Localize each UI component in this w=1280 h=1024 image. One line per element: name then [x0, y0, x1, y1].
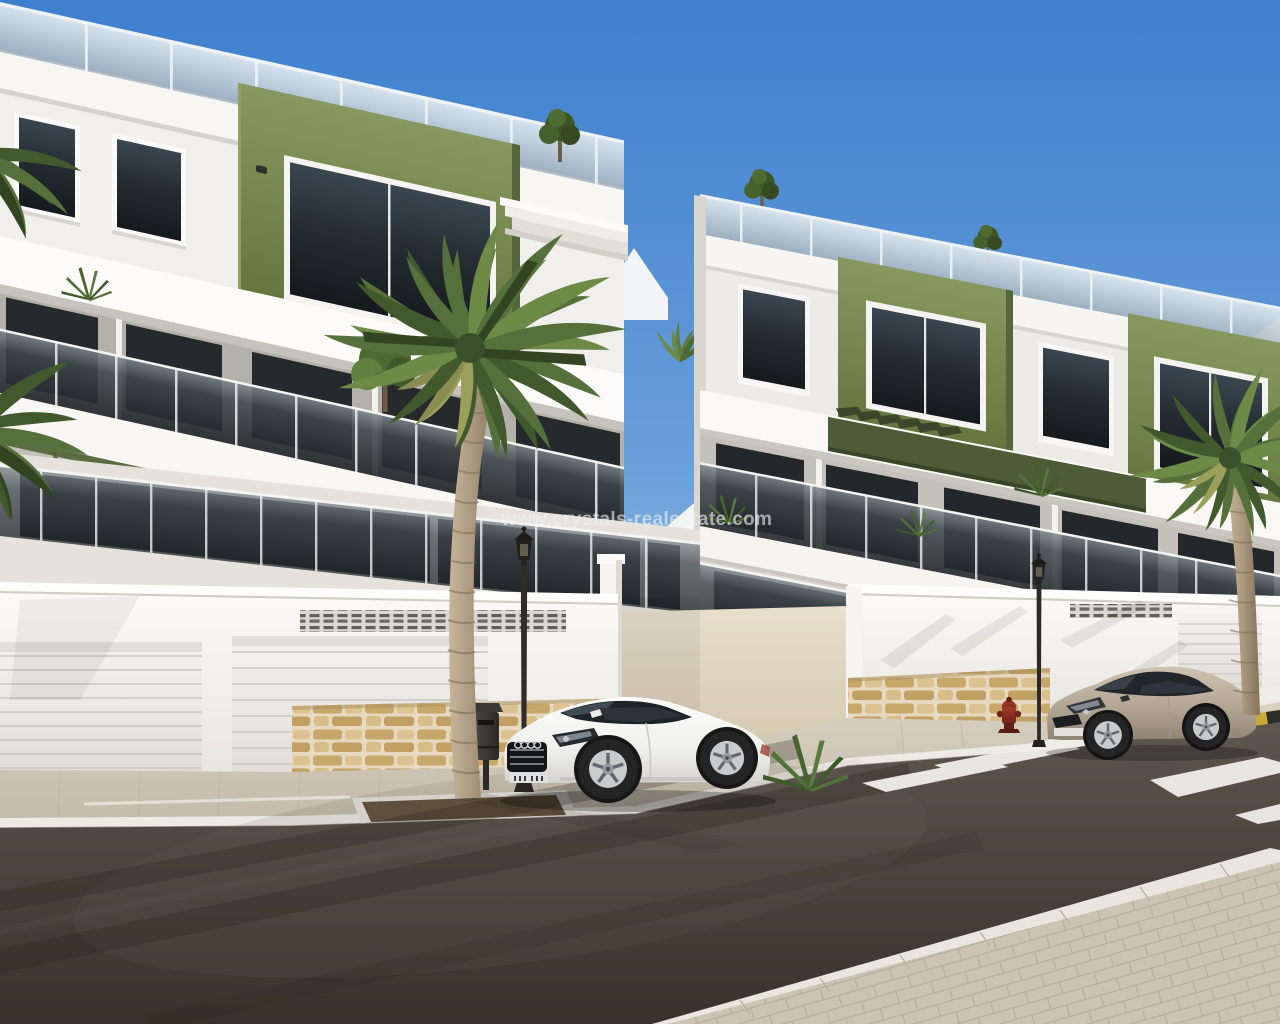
scene-canvas: www.crystals-realestate.com [0, 0, 1280, 1024]
watermark: www.crystals-realestate.com [501, 509, 773, 530]
rendered-photo: www.crystals-realestate.com [0, 0, 1280, 1024]
green-accent-block [838, 257, 1013, 451]
license-plate [1054, 728, 1084, 736]
